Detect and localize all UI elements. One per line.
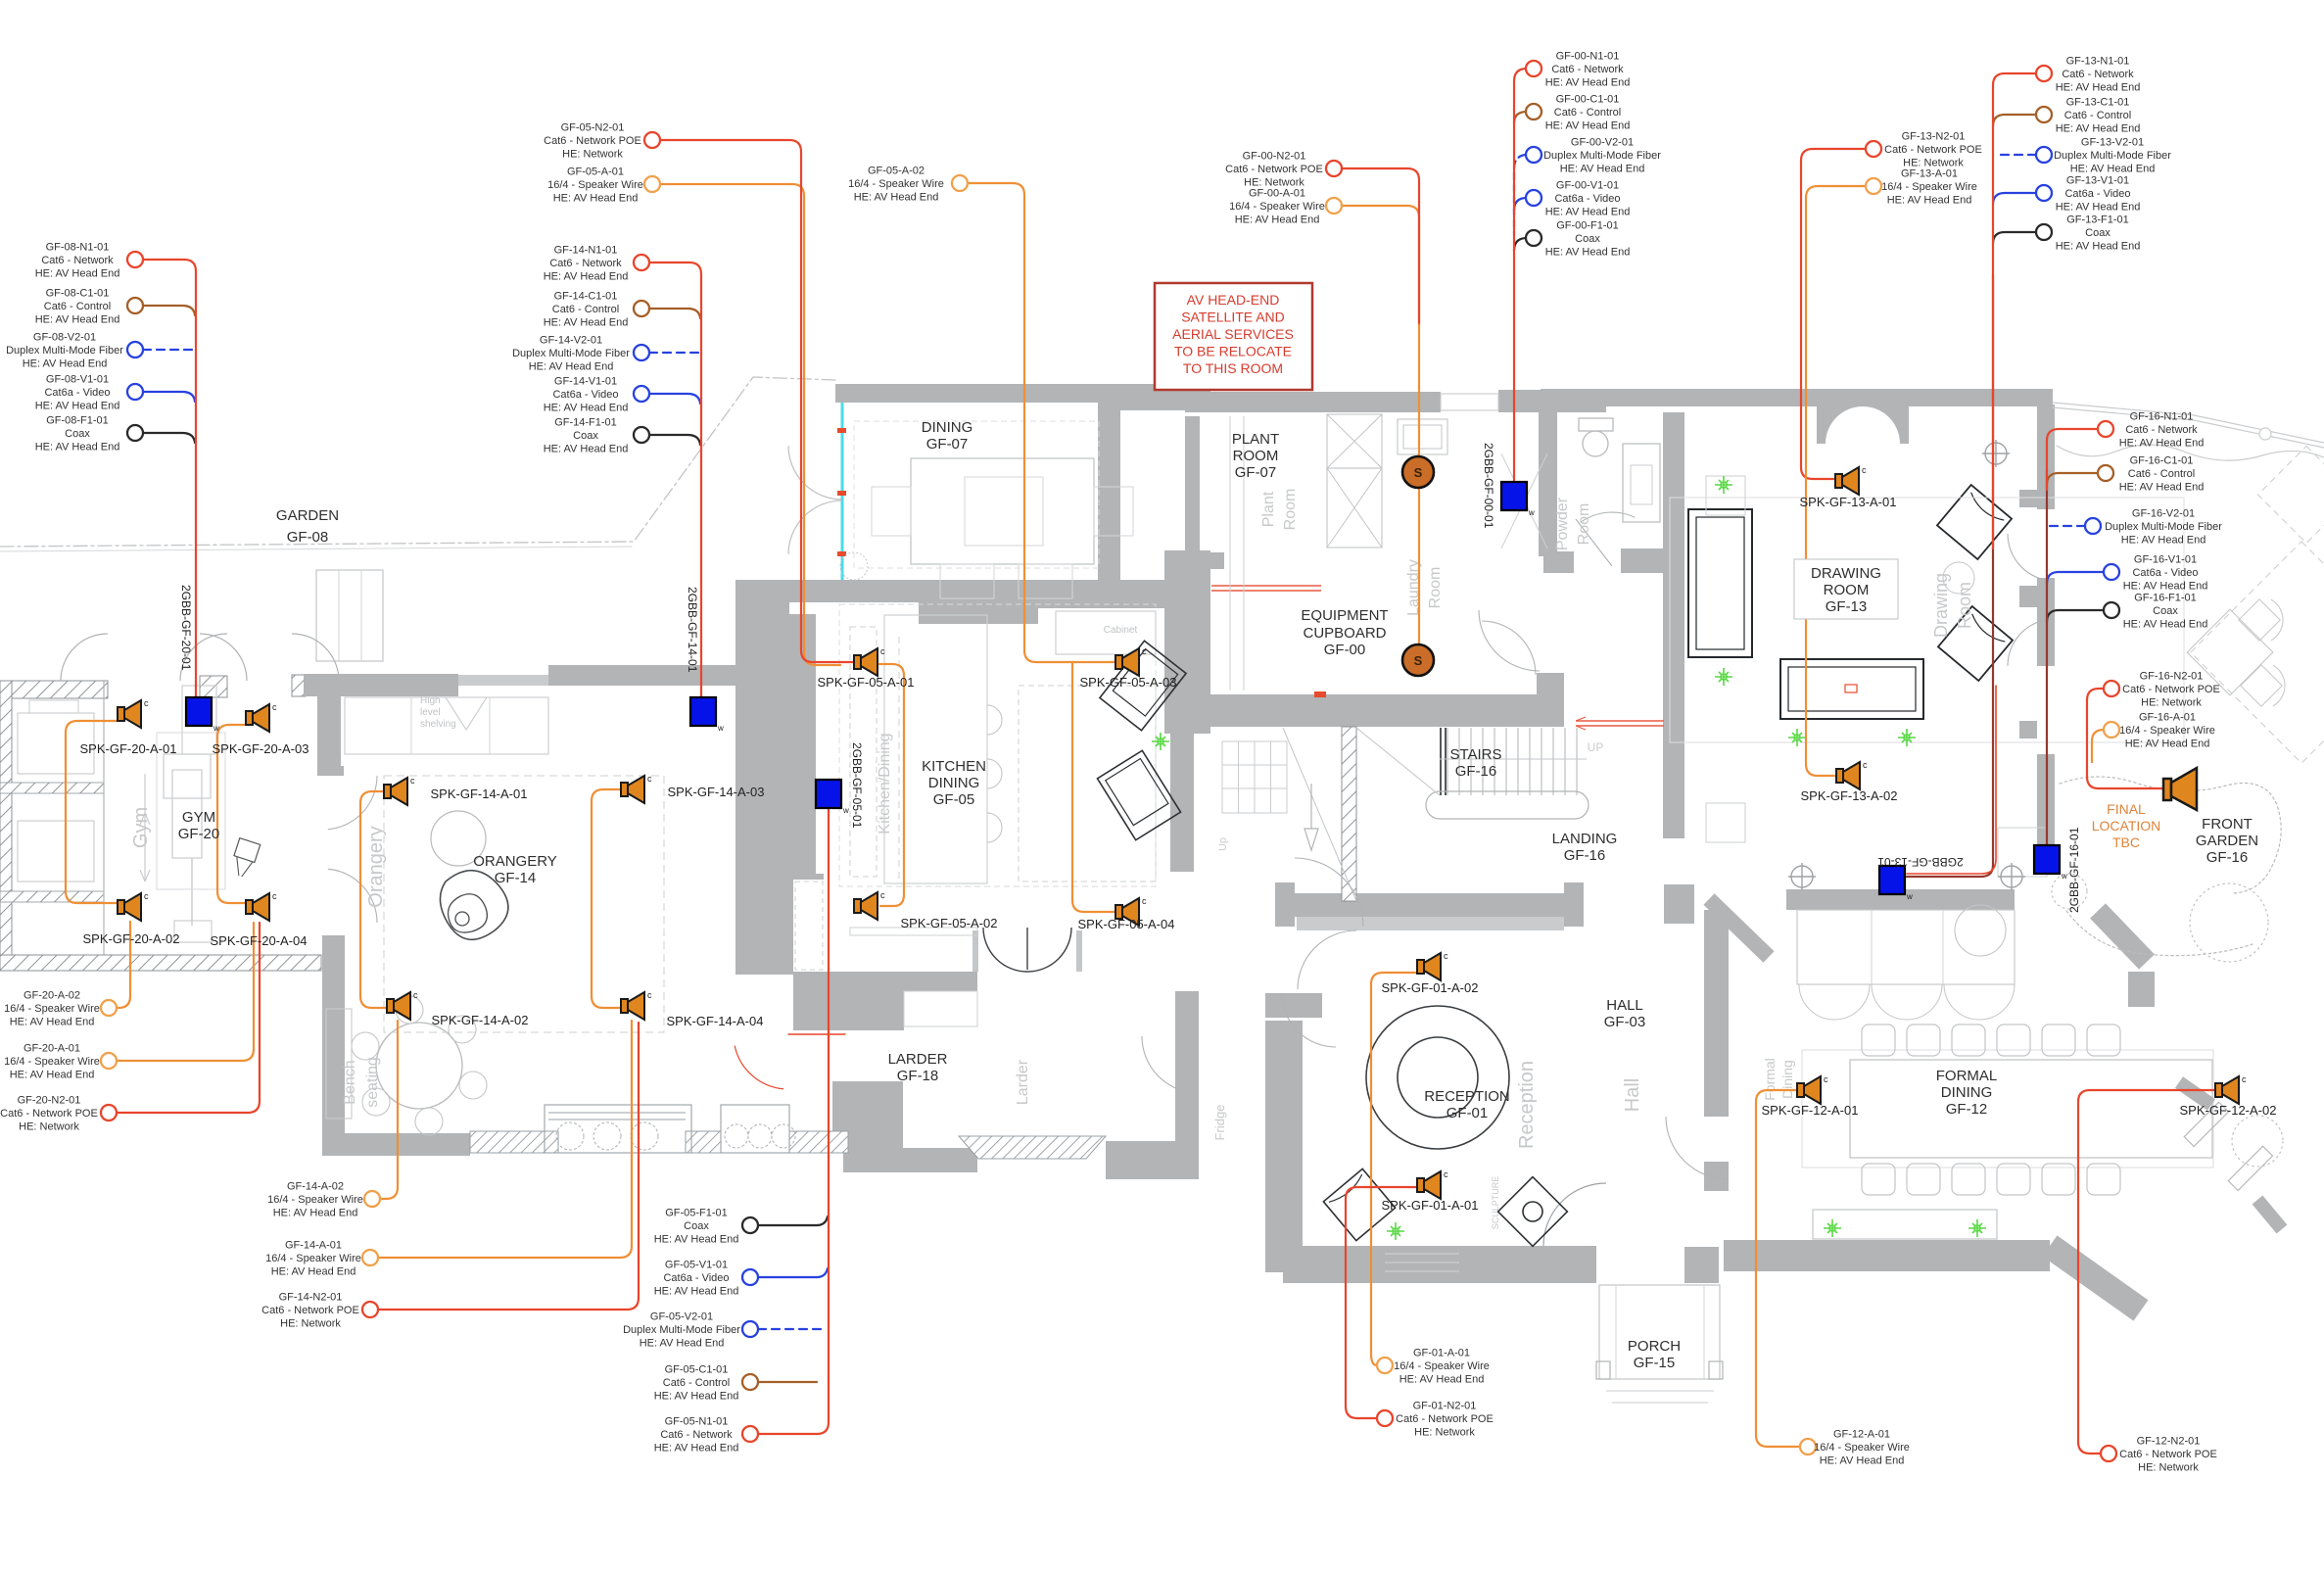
svg-text:HE: AV Head End: HE: AV Head End bbox=[2056, 241, 2141, 253]
svg-text:GF-05-F1-01: GF-05-F1-01 bbox=[665, 1208, 728, 1219]
svg-text:ROOM: ROOM bbox=[1824, 582, 1870, 598]
svg-text:GF-13-V1-01: GF-13-V1-01 bbox=[2066, 175, 2129, 187]
svg-text:HE: AV Head End: HE: AV Head End bbox=[654, 1286, 739, 1298]
svg-text:2GBB-GF-20-01: 2GBB-GF-20-01 bbox=[179, 585, 193, 671]
svg-text:GF-08-V1-01: GF-08-V1-01 bbox=[46, 374, 109, 386]
svg-text:GF-15: GF-15 bbox=[1634, 1355, 1676, 1371]
svg-text:w: w bbox=[1906, 892, 1913, 901]
svg-text:HE: AV Head End: HE: AV Head End bbox=[271, 1266, 356, 1278]
svg-text:SPK-GF-13-A-01: SPK-GF-13-A-01 bbox=[1800, 495, 1897, 509]
svg-text:RECEPTION: RECEPTION bbox=[1424, 1088, 1510, 1105]
svg-text:ORANGERY: ORANGERY bbox=[473, 853, 557, 870]
svg-text:Cat6 - Control: Cat6 - Control bbox=[663, 1377, 730, 1389]
svg-text:GF-08: GF-08 bbox=[287, 529, 329, 546]
svg-text:HE: AV Head End: HE: AV Head End bbox=[640, 1338, 725, 1350]
svg-text:GF-18: GF-18 bbox=[897, 1068, 939, 1084]
svg-text:GF-07: GF-07 bbox=[926, 436, 969, 453]
svg-text:SPK-GF-01-A-02: SPK-GF-01-A-02 bbox=[1382, 980, 1479, 995]
svg-text:GF-12-A-01: GF-12-A-01 bbox=[1833, 1429, 1890, 1441]
svg-text:Cat6 - Network: Cat6 - Network bbox=[549, 258, 622, 269]
svg-text:16/4 - Speaker Wire: 16/4 - Speaker Wire bbox=[4, 1003, 100, 1015]
svg-text:HE: AV Head End: HE: AV Head End bbox=[1820, 1455, 1905, 1467]
svg-text:GF-13-C1-01: GF-13-C1-01 bbox=[2066, 97, 2130, 109]
svg-text:Cat6a - Video: Cat6a - Video bbox=[2132, 567, 2198, 579]
svg-text:Cat6 - Control: Cat6 - Control bbox=[2064, 110, 2131, 121]
svg-text:Cat6 - Control: Cat6 - Control bbox=[1554, 107, 1621, 119]
svg-text:Cat6a - Video: Cat6a - Video bbox=[663, 1272, 729, 1284]
svg-text:GF-20-A-01: GF-20-A-01 bbox=[24, 1043, 80, 1055]
svg-text:c: c bbox=[647, 990, 652, 1000]
svg-text:16/4 - Speaker Wire: 16/4 - Speaker Wire bbox=[1229, 201, 1325, 213]
svg-text:Formal: Formal bbox=[1762, 1058, 1778, 1101]
svg-text:w: w bbox=[1528, 508, 1535, 517]
svg-text:HE: AV Head End: HE: AV Head End bbox=[10, 1017, 95, 1028]
svg-text:Coax: Coax bbox=[573, 430, 598, 442]
svg-text:Coax: Coax bbox=[1575, 233, 1600, 245]
svg-text:LARDER: LARDER bbox=[888, 1051, 948, 1068]
svg-text:Hall: Hall bbox=[1622, 1078, 1643, 1112]
svg-text:Duplex Multi-Mode Fiber: Duplex Multi-Mode Fiber bbox=[2054, 150, 2171, 162]
svg-text:GF-16: GF-16 bbox=[2206, 849, 2249, 866]
svg-text:GF-20-N2-01: GF-20-N2-01 bbox=[18, 1095, 81, 1107]
svg-text:Up: Up bbox=[1217, 837, 1229, 851]
svg-text:Powder: Powder bbox=[1554, 497, 1571, 550]
svg-text:AERIAL SERVICES: AERIAL SERVICES bbox=[1172, 326, 1294, 342]
svg-text:16/4 - Speaker Wire: 16/4 - Speaker Wire bbox=[4, 1056, 100, 1068]
svg-text:SATELLITE AND: SATELLITE AND bbox=[1181, 310, 1285, 325]
svg-text:SPK-GF-14-A-01: SPK-GF-14-A-01 bbox=[431, 786, 528, 801]
svg-text:Kitchen/Dining: Kitchen/Dining bbox=[877, 733, 893, 834]
svg-text:Cat6 - Network: Cat6 - Network bbox=[41, 255, 114, 266]
svg-text:DINING: DINING bbox=[1941, 1084, 1993, 1101]
svg-text:Cat6a - Video: Cat6a - Video bbox=[552, 389, 618, 401]
svg-text:Cat6 - Control: Cat6 - Control bbox=[552, 304, 619, 315]
svg-text:GF-16-N2-01: GF-16-N2-01 bbox=[2140, 671, 2204, 683]
svg-text:LANDING: LANDING bbox=[1552, 831, 1618, 847]
svg-text:HE: AV Head End: HE: AV Head End bbox=[273, 1208, 358, 1219]
svg-text:FORMAL: FORMAL bbox=[1936, 1068, 1998, 1084]
svg-text:SPK-GF-05-A-03: SPK-GF-05-A-03 bbox=[1080, 675, 1177, 690]
svg-text:Cat6 - Network POE: Cat6 - Network POE bbox=[1884, 144, 1982, 156]
svg-text:Fridge: Fridge bbox=[1212, 1105, 1227, 1141]
svg-text:c: c bbox=[144, 891, 149, 901]
svg-text:Cat6a - Video: Cat6a - Video bbox=[44, 387, 110, 399]
svg-text:GF-05-V1-01: GF-05-V1-01 bbox=[665, 1260, 728, 1271]
svg-text:Duplex Multi-Mode Fiber: Duplex Multi-Mode Fiber bbox=[2105, 521, 2222, 533]
svg-text:Room: Room bbox=[1576, 503, 1592, 546]
svg-text:w: w bbox=[717, 724, 724, 733]
svg-text:GF-00-N1-01: GF-00-N1-01 bbox=[1556, 51, 1620, 63]
svg-text:HE: AV Head End: HE: AV Head End bbox=[654, 1234, 739, 1246]
svg-text:GF-14-V1-01: GF-14-V1-01 bbox=[554, 376, 617, 388]
svg-text:HE: Network: HE: Network bbox=[19, 1121, 79, 1133]
svg-text:GF-08-F1-01: GF-08-F1-01 bbox=[46, 415, 109, 427]
svg-text:Duplex Multi-Mode Fiber: Duplex Multi-Mode Fiber bbox=[6, 345, 123, 357]
svg-text:SPK-GF-12-A-01: SPK-GF-12-A-01 bbox=[1762, 1103, 1859, 1118]
svg-text:16/4 - Speaker Wire: 16/4 - Speaker Wire bbox=[2119, 725, 2215, 737]
svg-text:Room: Room bbox=[1282, 489, 1299, 531]
svg-text:Cat6 - Network: Cat6 - Network bbox=[2062, 69, 2134, 80]
svg-text:GF-01: GF-01 bbox=[1447, 1105, 1489, 1121]
svg-text:c: c bbox=[272, 702, 277, 712]
svg-text:c: c bbox=[410, 776, 415, 786]
svg-text:Cat6 - Network: Cat6 - Network bbox=[660, 1429, 733, 1441]
svg-text:HE: AV Head End: HE: AV Head End bbox=[35, 314, 120, 326]
svg-text:Bench: Bench bbox=[342, 1060, 358, 1104]
svg-text:SPK-GF-14-A-03: SPK-GF-14-A-03 bbox=[668, 785, 765, 799]
svg-text:ROOM: ROOM bbox=[1233, 448, 1279, 464]
svg-text:GF-12: GF-12 bbox=[1946, 1101, 1988, 1118]
svg-text:c: c bbox=[880, 646, 885, 656]
svg-text:GF-16-A-01: GF-16-A-01 bbox=[2139, 712, 2196, 724]
svg-text:TO BE RELOCATE: TO BE RELOCATE bbox=[1174, 344, 1292, 359]
svg-text:SCULPTURE: SCULPTURE bbox=[1491, 1176, 1500, 1230]
svg-text:Duplex Multi-Mode Fiber: Duplex Multi-Mode Fiber bbox=[623, 1324, 740, 1336]
svg-text:HE: AV Head End: HE: AV Head End bbox=[1545, 207, 1631, 218]
svg-text:GF-13-A-01: GF-13-A-01 bbox=[1901, 168, 1958, 180]
svg-text:GF-14-N2-01: GF-14-N2-01 bbox=[279, 1292, 343, 1304]
svg-text:c: c bbox=[880, 890, 885, 900]
svg-text:HE: AV Head End: HE: AV Head End bbox=[654, 1391, 739, 1403]
svg-text:GF-14-A-02: GF-14-A-02 bbox=[287, 1181, 344, 1193]
svg-text:16/4 - Speaker Wire: 16/4 - Speaker Wire bbox=[1881, 181, 1977, 193]
svg-text:c: c bbox=[1863, 760, 1868, 770]
svg-text:c: c bbox=[272, 891, 277, 901]
svg-text:SPK-GF-20-A-02: SPK-GF-20-A-02 bbox=[83, 931, 180, 946]
svg-text:2GBB-GF-16-01: 2GBB-GF-16-01 bbox=[2067, 827, 2081, 913]
svg-text:GF-20: GF-20 bbox=[178, 826, 220, 842]
svg-text:Room: Room bbox=[1427, 567, 1444, 609]
svg-text:HE: AV Head End: HE: AV Head End bbox=[544, 317, 629, 329]
svg-text:2GBB-GF-00-01: 2GBB-GF-00-01 bbox=[1482, 443, 1495, 529]
svg-text:16/4 - Speaker Wire: 16/4 - Speaker Wire bbox=[547, 179, 643, 191]
svg-text:GF-13: GF-13 bbox=[1826, 598, 1868, 615]
svg-text:GARDEN: GARDEN bbox=[2196, 833, 2258, 849]
svg-text:HE: AV Head End: HE: AV Head End bbox=[553, 193, 639, 205]
svg-text:HE: AV Head End: HE: AV Head End bbox=[654, 1443, 739, 1454]
svg-text:Cat6 - Network POE: Cat6 - Network POE bbox=[1396, 1413, 1494, 1425]
svg-text:level: level bbox=[420, 707, 441, 718]
svg-text:GARDEN: GARDEN bbox=[276, 507, 339, 524]
svg-text:2GBB-GF-05-01: 2GBB-GF-05-01 bbox=[850, 742, 864, 829]
svg-text:HE: AV Head End: HE: AV Head End bbox=[35, 268, 120, 280]
svg-text:Coax: Coax bbox=[684, 1220, 709, 1232]
svg-text:Orangery: Orangery bbox=[365, 826, 387, 907]
svg-text:FINAL: FINAL bbox=[2107, 801, 2146, 817]
svg-text:c: c bbox=[1444, 1169, 1448, 1179]
svg-text:GF-05-N1-01: GF-05-N1-01 bbox=[665, 1416, 729, 1428]
svg-text:GF-00-A-01: GF-00-A-01 bbox=[1249, 188, 1305, 200]
svg-text:GF-14-A-01: GF-14-A-01 bbox=[285, 1240, 342, 1252]
svg-text:Cat6a - Video: Cat6a - Video bbox=[2064, 188, 2130, 200]
svg-text:HE: AV Head End: HE: AV Head End bbox=[2119, 482, 2205, 494]
svg-text:UP: UP bbox=[1588, 740, 1604, 754]
svg-text:High: High bbox=[420, 695, 441, 706]
svg-text:c: c bbox=[144, 698, 149, 708]
svg-text:GF-00-V1-01: GF-00-V1-01 bbox=[1556, 180, 1619, 192]
svg-text:SPK-GF-20-A-01: SPK-GF-20-A-01 bbox=[80, 741, 177, 756]
svg-text:HE: AV Head End: HE: AV Head End bbox=[23, 358, 108, 370]
svg-text:DRAWING: DRAWING bbox=[1811, 565, 1881, 582]
svg-text:HE: AV Head End: HE: AV Head End bbox=[2123, 581, 2208, 593]
svg-text:DINING: DINING bbox=[928, 775, 980, 791]
svg-text:SPK-GF-05-A-04: SPK-GF-05-A-04 bbox=[1078, 917, 1175, 931]
svg-text:HE: Network: HE: Network bbox=[1414, 1427, 1475, 1439]
svg-text:Cat6 - Network POE: Cat6 - Network POE bbox=[2119, 1449, 2217, 1460]
svg-text:GF-08-N1-01: GF-08-N1-01 bbox=[46, 242, 110, 254]
svg-text:FRONT: FRONT bbox=[2202, 816, 2253, 833]
svg-text:GF-05-N2-01: GF-05-N2-01 bbox=[561, 122, 625, 134]
svg-text:GF-05: GF-05 bbox=[933, 791, 975, 808]
svg-text:S: S bbox=[1414, 465, 1423, 480]
svg-text:GF-13-N2-01: GF-13-N2-01 bbox=[1902, 131, 1966, 143]
svg-text:GF-14-N1-01: GF-14-N1-01 bbox=[554, 245, 618, 257]
svg-text:GF-16-F1-01: GF-16-F1-01 bbox=[2134, 593, 2197, 604]
svg-text:Cat6a - Video: Cat6a - Video bbox=[1554, 193, 1620, 205]
svg-text:GF-08-V2-01: GF-08-V2-01 bbox=[33, 332, 96, 344]
svg-text:16/4 - Speaker Wire: 16/4 - Speaker Wire bbox=[848, 178, 944, 190]
svg-text:CUPBOARD: CUPBOARD bbox=[1303, 625, 1386, 642]
svg-text:SPK-GF-12-A-02: SPK-GF-12-A-02 bbox=[2180, 1103, 2277, 1118]
svg-text:GF-00-F1-01: GF-00-F1-01 bbox=[1556, 220, 1619, 232]
svg-text:SPK-GF-01-A-01: SPK-GF-01-A-01 bbox=[1382, 1198, 1479, 1213]
svg-text:GYM: GYM bbox=[182, 809, 215, 826]
svg-text:TO THIS ROOM: TO THIS ROOM bbox=[1183, 360, 1283, 376]
svg-text:Coax: Coax bbox=[2085, 227, 2111, 239]
svg-text:Cat6 - Control: Cat6 - Control bbox=[44, 301, 111, 312]
svg-text:Drawing: Drawing bbox=[1931, 573, 1951, 638]
svg-text:GF-13-F1-01: GF-13-F1-01 bbox=[2066, 214, 2129, 226]
svg-text:HE: Network: HE: Network bbox=[2141, 697, 2202, 709]
svg-text:2GBB-GF-14-01: 2GBB-GF-14-01 bbox=[686, 587, 699, 673]
svg-text:Duplex Multi-Mode Fiber: Duplex Multi-Mode Fiber bbox=[1543, 150, 1661, 162]
svg-text:HE: AV Head End: HE: AV Head End bbox=[1545, 120, 1631, 132]
svg-text:HE: AV Head End: HE: AV Head End bbox=[2119, 438, 2205, 450]
svg-text:SPK-GF-05-A-02: SPK-GF-05-A-02 bbox=[901, 916, 998, 930]
svg-text:HE: Network: HE: Network bbox=[2138, 1462, 2199, 1474]
svg-text:GF-01-A-01: GF-01-A-01 bbox=[1413, 1348, 1470, 1359]
svg-text:HE: AV Head End: HE: AV Head End bbox=[1235, 214, 1320, 226]
svg-text:w: w bbox=[842, 806, 849, 815]
svg-text:GF-03: GF-03 bbox=[1604, 1014, 1646, 1030]
svg-text:Cat6 - Network: Cat6 - Network bbox=[1551, 64, 1624, 75]
svg-text:GF-00: GF-00 bbox=[1324, 642, 1366, 658]
svg-text:GF-13-N1-01: GF-13-N1-01 bbox=[2066, 56, 2130, 68]
svg-text:Cat6 - Network POE: Cat6 - Network POE bbox=[544, 135, 641, 147]
svg-text:GF-14-V2-01: GF-14-V2-01 bbox=[540, 335, 602, 347]
svg-text:SPK-GF-14-A-02: SPK-GF-14-A-02 bbox=[432, 1013, 529, 1027]
svg-text:HE: AV Head End: HE: AV Head End bbox=[2056, 82, 2141, 94]
svg-text:HE: AV Head End: HE: AV Head End bbox=[2056, 202, 2141, 214]
svg-text:HE: AV Head End: HE: AV Head End bbox=[2070, 164, 2156, 175]
svg-text:GF-05-C1-01: GF-05-C1-01 bbox=[665, 1364, 729, 1376]
svg-text:GF-13-V2-01: GF-13-V2-01 bbox=[2081, 137, 2144, 149]
svg-text:HE: AV Head End: HE: AV Head End bbox=[529, 361, 614, 373]
svg-text:GF-05-A-01: GF-05-A-01 bbox=[567, 167, 624, 178]
svg-text:GF-05-A-02: GF-05-A-02 bbox=[868, 166, 925, 177]
svg-text:Cat6 - Network POE: Cat6 - Network POE bbox=[0, 1108, 98, 1120]
svg-text:PORCH: PORCH bbox=[1628, 1338, 1681, 1355]
svg-text:c: c bbox=[1862, 465, 1867, 475]
svg-text:GF-00-V2-01: GF-00-V2-01 bbox=[1571, 137, 1634, 149]
svg-text:16/4 - Speaker Wire: 16/4 - Speaker Wire bbox=[1814, 1442, 1910, 1454]
svg-text:SPK-GF-14-A-04: SPK-GF-14-A-04 bbox=[667, 1014, 764, 1028]
svg-text:GF-12-N2-01: GF-12-N2-01 bbox=[2137, 1436, 2201, 1448]
svg-text:GF-16-V1-01: GF-16-V1-01 bbox=[2134, 554, 2197, 566]
svg-text:c: c bbox=[1824, 1074, 1828, 1084]
svg-text:c: c bbox=[1444, 951, 1448, 961]
svg-text:Cabinet: Cabinet bbox=[1104, 625, 1138, 636]
svg-text:Reception: Reception bbox=[1516, 1061, 1538, 1149]
svg-text:SPK-GF-05-A-01: SPK-GF-05-A-01 bbox=[818, 675, 915, 690]
svg-text:HE: AV Head End: HE: AV Head End bbox=[1545, 77, 1631, 89]
svg-text:Cat6 - Control: Cat6 - Control bbox=[2128, 468, 2195, 480]
svg-text:w: w bbox=[213, 724, 219, 733]
svg-text:SPK-GF-20-A-04: SPK-GF-20-A-04 bbox=[211, 933, 308, 948]
svg-text:GF-14-C1-01: GF-14-C1-01 bbox=[554, 291, 618, 303]
svg-text:GF-05-V2-01: GF-05-V2-01 bbox=[650, 1311, 713, 1323]
svg-text:c: c bbox=[1142, 646, 1147, 656]
svg-text:HE: AV Head End: HE: AV Head End bbox=[2056, 123, 2141, 135]
svg-text:DINING: DINING bbox=[922, 419, 973, 436]
svg-text:HE: AV Head End: HE: AV Head End bbox=[2123, 619, 2208, 631]
svg-text:c: c bbox=[1142, 896, 1147, 906]
svg-text:HE: AV Head End: HE: AV Head End bbox=[1399, 1374, 1485, 1386]
svg-text:TBC: TBC bbox=[2112, 834, 2140, 850]
svg-text:GF-20-A-02: GF-20-A-02 bbox=[24, 990, 80, 1002]
svg-text:HE: Network: HE: Network bbox=[280, 1318, 341, 1330]
svg-text:Dining: Dining bbox=[1779, 1060, 1795, 1099]
svg-text:STAIRS: STAIRS bbox=[1449, 746, 1501, 763]
svg-text:Room: Room bbox=[1955, 582, 1974, 629]
svg-text:Coax: Coax bbox=[65, 428, 90, 440]
svg-text:HE: AV Head End: HE: AV Head End bbox=[544, 444, 629, 455]
svg-text:HE: AV Head End: HE: AV Head End bbox=[2125, 739, 2210, 750]
svg-text:Cat6 - Network: Cat6 - Network bbox=[2125, 424, 2198, 436]
svg-text:Cat6 - Network POE: Cat6 - Network POE bbox=[2122, 684, 2220, 695]
svg-text:PLANT: PLANT bbox=[1232, 431, 1279, 448]
svg-text:w: w bbox=[2061, 872, 2067, 881]
svg-text:Duplex Multi-Mode Fiber: Duplex Multi-Mode Fiber bbox=[512, 348, 630, 359]
svg-text:HALL: HALL bbox=[1606, 997, 1643, 1014]
svg-text:2GBB-GF-13-01: 2GBB-GF-13-01 bbox=[1877, 855, 1964, 869]
svg-text:S: S bbox=[1414, 653, 1423, 668]
svg-text:GF-00-C1-01: GF-00-C1-01 bbox=[1556, 94, 1620, 106]
svg-text:HE: AV Head End: HE: AV Head End bbox=[544, 271, 629, 283]
svg-text:GF-00-N2-01: GF-00-N2-01 bbox=[1243, 151, 1306, 163]
svg-text:GF-08-C1-01: GF-08-C1-01 bbox=[46, 288, 110, 300]
svg-text:16/4 - Speaker Wire: 16/4 - Speaker Wire bbox=[267, 1194, 363, 1206]
svg-text:c: c bbox=[413, 990, 418, 1000]
svg-text:GF-16: GF-16 bbox=[1564, 847, 1606, 864]
svg-text:GF-16: GF-16 bbox=[1455, 763, 1497, 780]
svg-text:c: c bbox=[647, 774, 652, 784]
svg-text:GF-14: GF-14 bbox=[495, 870, 537, 886]
svg-text:GF-07: GF-07 bbox=[1235, 464, 1277, 481]
svg-text:HE: AV Head End: HE: AV Head End bbox=[1545, 247, 1631, 259]
svg-text:KITCHEN: KITCHEN bbox=[922, 758, 986, 775]
svg-text:LOCATION: LOCATION bbox=[2092, 818, 2161, 834]
svg-text:GF-16-V2-01: GF-16-V2-01 bbox=[2132, 508, 2195, 520]
svg-text:HE: AV Head End: HE: AV Head End bbox=[35, 401, 120, 412]
svg-text:SPK-GF-20-A-03: SPK-GF-20-A-03 bbox=[213, 741, 309, 756]
svg-text:c: c bbox=[2242, 1074, 2247, 1084]
svg-text:Cat6 - Network POE: Cat6 - Network POE bbox=[1225, 164, 1323, 175]
svg-text:AV HEAD-END: AV HEAD-END bbox=[1187, 292, 1280, 308]
svg-text:seating: seating bbox=[364, 1057, 381, 1108]
svg-text:16/4 - Speaker Wire: 16/4 - Speaker Wire bbox=[265, 1253, 361, 1264]
svg-text:GF-16-C1-01: GF-16-C1-01 bbox=[2130, 455, 2194, 467]
svg-text:EQUIPMENT: EQUIPMENT bbox=[1301, 607, 1388, 624]
svg-text:GF-16-N1-01: GF-16-N1-01 bbox=[2130, 411, 2194, 423]
svg-text:GF-01-N2-01: GF-01-N2-01 bbox=[1413, 1401, 1477, 1412]
svg-text:SPK-GF-13-A-02: SPK-GF-13-A-02 bbox=[1801, 788, 1898, 803]
svg-text:HE: AV Head End: HE: AV Head End bbox=[1887, 195, 1972, 207]
svg-text:shelving: shelving bbox=[420, 719, 456, 730]
svg-text:16/4 - Speaker Wire: 16/4 - Speaker Wire bbox=[1394, 1360, 1490, 1372]
svg-text:HE: AV Head End: HE: AV Head End bbox=[854, 192, 939, 204]
svg-text:HE: Network: HE: Network bbox=[562, 149, 623, 161]
svg-text:HE: AV Head End: HE: AV Head End bbox=[10, 1070, 95, 1081]
svg-text:Larder: Larder bbox=[1015, 1059, 1031, 1105]
svg-text:HE: AV Head End: HE: AV Head End bbox=[544, 403, 629, 414]
svg-text:Coax: Coax bbox=[2153, 605, 2178, 617]
svg-text:HE: AV Head End: HE: AV Head End bbox=[35, 442, 120, 453]
svg-text:GF-14-F1-01: GF-14-F1-01 bbox=[554, 417, 617, 429]
svg-text:HE: AV Head End: HE: AV Head End bbox=[2121, 535, 2206, 547]
svg-text:HE: AV Head End: HE: AV Head End bbox=[1560, 164, 1645, 175]
svg-text:Gym: Gym bbox=[130, 807, 152, 848]
svg-text:Cat6 - Network POE: Cat6 - Network POE bbox=[261, 1305, 359, 1316]
svg-text:Plant: Plant bbox=[1260, 491, 1277, 527]
